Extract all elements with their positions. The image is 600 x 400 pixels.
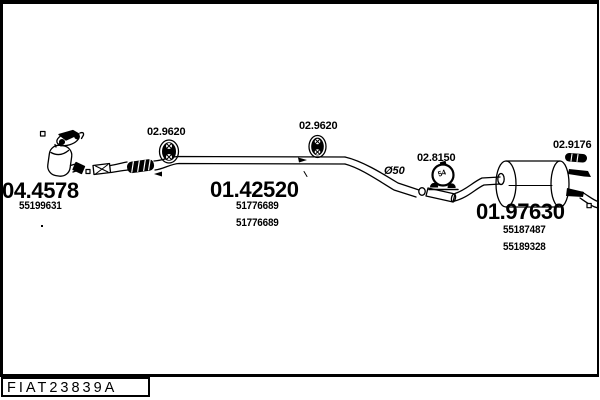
pipe-coupler (93, 164, 111, 175)
catalyst-body (46, 144, 73, 178)
rear-hanger-icon (565, 153, 588, 163)
rubber-hanger-icon (309, 136, 326, 158)
clamp-ref-label: 02.8150 (417, 153, 455, 164)
drawing-code-box: FIAT23839A (1, 377, 150, 397)
pipe-diameter-label: Ø50 (384, 166, 405, 177)
pipe-end-ring (419, 188, 425, 196)
marker-square-icon (86, 170, 90, 174)
oe-number: 51776689 (236, 218, 279, 229)
rubber-hanger-icon (160, 140, 179, 163)
tailpipe-wedge (566, 188, 584, 197)
flex-pipe-section (126, 159, 154, 174)
parts-diagram-page: 02.9620 02.9620 02.8150 54 02.9176 Ø50 0… (0, 0, 600, 400)
tick-marker (304, 172, 307, 177)
part-number-centre-pipe: 01.42520 (210, 179, 299, 201)
arrow-marker-icon (154, 172, 162, 177)
hanger-ref-label: 02.9620 (299, 121, 337, 132)
oe-number: 55189328 (503, 242, 546, 253)
silencer-inlet (498, 174, 504, 185)
part-number-rear-silencer: 01.97630 (476, 201, 565, 223)
hanger-bracket (568, 169, 591, 177)
rear-hanger-ref-label: 02.9176 (553, 140, 591, 151)
oe-number: 55199631 (19, 201, 62, 212)
marker-square-icon (41, 132, 46, 137)
dot-marker (41, 225, 43, 227)
arrow-marker-icon (298, 158, 307, 163)
marker-square-icon (587, 204, 591, 208)
oe-number: 51776689 (236, 201, 279, 212)
oe-number: 55187487 (503, 225, 546, 236)
hanger-ref-label: 02.9620 (147, 127, 185, 138)
drawing-code: FIAT23839A (7, 381, 117, 396)
tailpipe (582, 192, 598, 202)
